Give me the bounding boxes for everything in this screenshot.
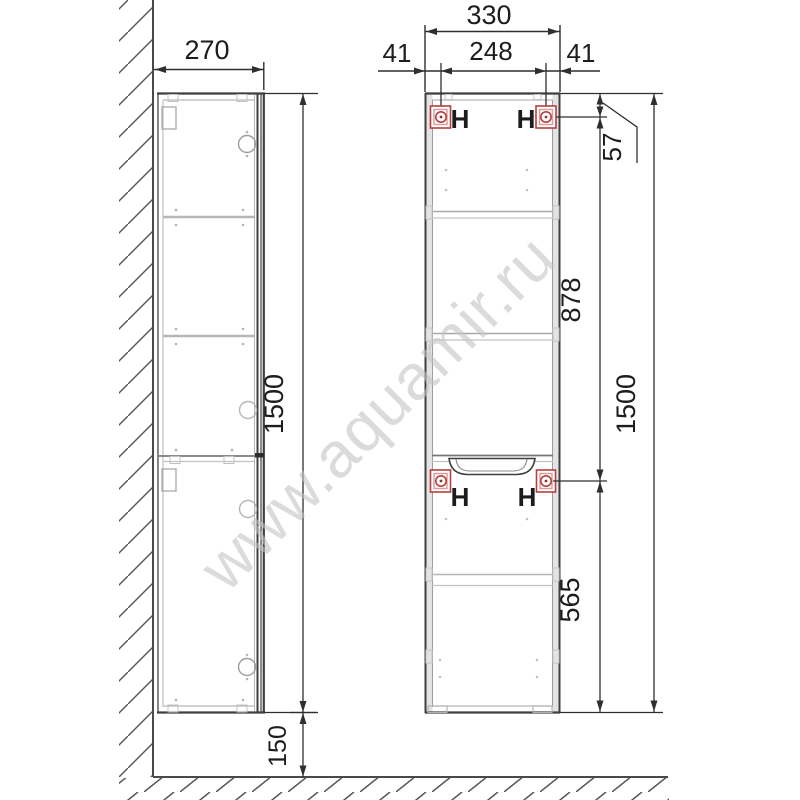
hinge-cam-circle [239,659,256,676]
mount-point-mid-right [537,470,556,492]
hinge-cam-circle [239,136,256,153]
cabinet-side-view [157,93,265,713]
wall-section [119,0,153,777]
mount-label-top-right: H [517,104,536,134]
cabinet-front-view [425,93,560,713]
dimension-front-height-1500 [651,94,658,713]
dim-hanger-offset-left: 41 [383,38,412,68]
front-clip [534,95,541,100]
dim-floor-clearance-value: 150 [264,725,292,767]
side-clip [224,457,234,464]
watermark-text: www.aquamir.ru [185,221,568,604]
dimension-floor-clearance-150 [290,713,316,778]
dim-side-height-value: 1500 [259,374,289,434]
floor-section [119,777,669,800]
handle-trough-outer [449,459,535,475]
hinge-cam-circle [240,402,257,419]
dim-lower-value: 565 [555,577,585,622]
floor-hatch [119,778,669,800]
mount-label-mid-right: H [518,482,537,512]
dimension-hanger-row [378,68,600,75]
dim-hanger-span: 248 [469,36,512,66]
drawing-page: 270 1500 150 [0,0,800,800]
mount-label-top-left: H [451,104,470,134]
wall-hatch [119,0,153,777]
dim-depth-value: 270 [184,35,229,65]
side-clip [170,457,180,464]
hinge-plate [162,107,176,129]
mount-label-mid-left: H [451,482,470,512]
dim-upper-value: 878 [556,277,586,322]
dim-front-height-value: 1500 [611,374,641,434]
front-clip [445,95,452,100]
dimension-upper-878 [597,117,604,481]
mount-point-mid-left [431,470,451,492]
dimension-depth-270 [154,62,264,90]
dim-hanger-offset-right: 41 [567,38,596,68]
dim-top-to-hanger-value: 57 [597,133,627,162]
dim-width-value: 330 [466,0,511,30]
hinge-plate [162,469,176,491]
dimension-lower-565 [597,481,604,712]
side-divider-front-tick [255,453,264,458]
technical-drawing: 270 1500 150 [0,0,800,800]
